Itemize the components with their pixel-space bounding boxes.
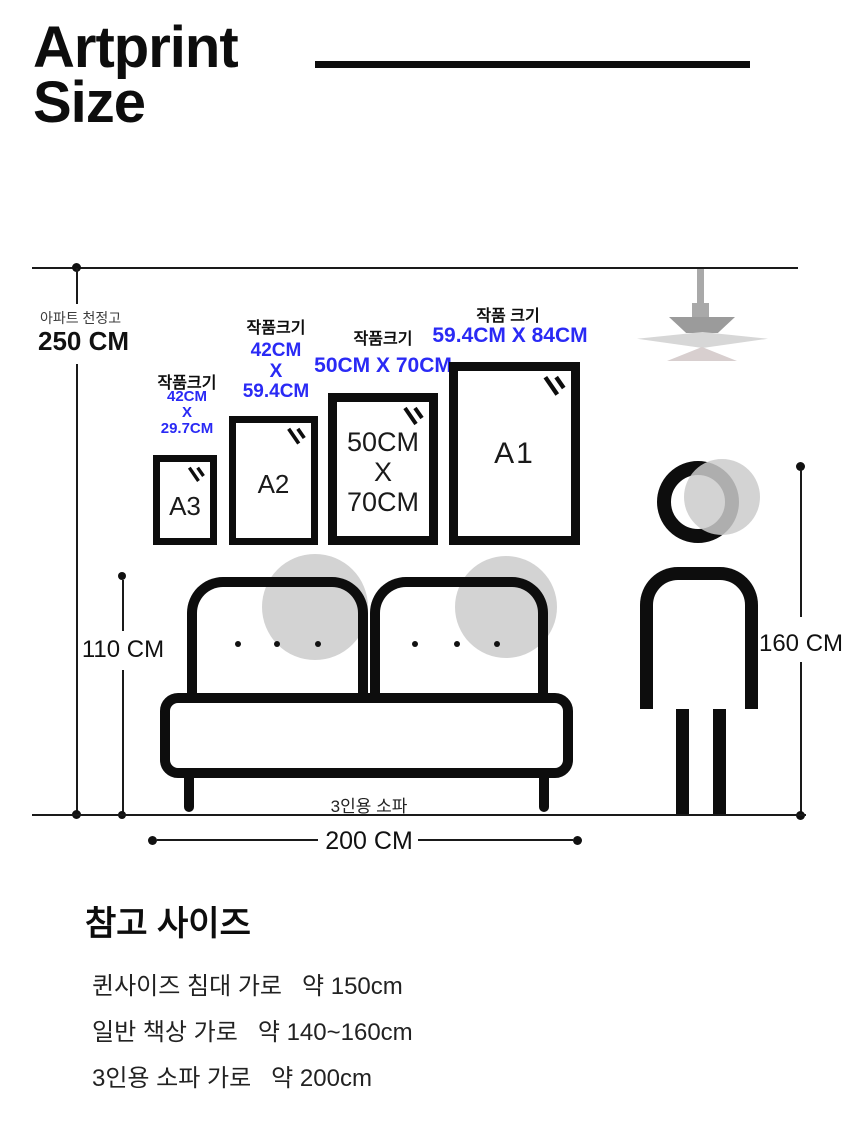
- person-torso: [640, 567, 758, 709]
- glass-glare-icon: [401, 406, 425, 430]
- title-rule: [315, 61, 750, 68]
- dim-110-line-upper: [122, 580, 124, 631]
- pendant-lamp-rod: [697, 269, 704, 305]
- ceiling-caption: 아파트 천정고: [40, 308, 121, 328]
- frame-50x70: 50CM X 70CM: [328, 393, 438, 545]
- frame-a1: A1: [449, 362, 580, 545]
- frame-a2-size-label: A2: [258, 470, 290, 499]
- cushion-button: [494, 641, 500, 647]
- person-leg-right: [713, 709, 726, 814]
- frame-a2-dim-width: 42CM: [243, 341, 310, 362]
- frame-a2-dimensions: 42CM X 59.4CM: [243, 341, 310, 403]
- pendant-lamp-shade-top: [669, 317, 735, 333]
- dim-160-line-upper: [800, 470, 802, 617]
- frame-a3-dim-width: 42CM: [161, 389, 214, 405]
- person-leg-left: [676, 709, 689, 814]
- frame-50x70-inner-height: 70CM: [347, 487, 419, 517]
- dim-200-line-right: [418, 839, 573, 841]
- page-title-line2: Size: [33, 75, 238, 130]
- dim-200-right-dot: [573, 836, 582, 845]
- glass-glare-icon: [186, 466, 206, 486]
- frame-a3-dim-x: X: [161, 405, 214, 421]
- dim-250-line-upper: [76, 268, 78, 304]
- frame-50x70-inner-x: X: [347, 457, 419, 487]
- page-title: Artprint Size: [33, 20, 238, 130]
- frame-50x70-caption: 작품크기: [354, 325, 413, 349]
- pendant-lamp-shade-middle: [637, 332, 768, 348]
- floor-line: [32, 814, 806, 816]
- pendant-lamp-shade-bottom: [667, 347, 737, 361]
- cushion-button: [315, 641, 321, 647]
- sofa-leg-right: [539, 776, 549, 812]
- frame-a3-dimensions: 42CM X 29.7CM: [161, 389, 214, 438]
- frame-50x70-size-label: 50CM X 70CM: [347, 427, 419, 518]
- frame-a1-size-label: A1: [494, 437, 535, 471]
- frame-a1-caption: 작품 크기: [476, 302, 539, 326]
- frame-50x70-dimensions: 50CM X 70CM: [314, 355, 452, 378]
- sofa-cushion-left: [187, 577, 368, 695]
- frame-a1-dimensions: 59.4CM X 84CM: [432, 325, 587, 348]
- dim-250-line-lower: [76, 364, 78, 813]
- ceiling-line: [32, 267, 798, 269]
- sofa-seat: [160, 693, 573, 778]
- frame-a2-caption: 작품크기: [247, 314, 306, 338]
- frame-a3-size-label: A3: [169, 492, 201, 521]
- reference-item-desk: 일반 책상 가로 약 140~160cm: [92, 1012, 413, 1047]
- frame-a2-dim-x: X: [243, 362, 310, 383]
- dim-200-line-left: [157, 839, 318, 841]
- cushion-button: [235, 641, 241, 647]
- sofa-width-label: 200 CM: [325, 827, 413, 856]
- frame-a3: A3: [153, 455, 217, 545]
- glass-glare-icon: [541, 375, 567, 401]
- reference-item-bed: 퀸사이즈 침대 가로 약 150cm: [92, 966, 403, 1001]
- dim-200-left-dot: [148, 836, 157, 845]
- person-height-label: 160 CM: [759, 630, 843, 658]
- dim-110-line-lower: [122, 670, 124, 815]
- person-head-accent-circle: [684, 459, 760, 535]
- ceiling-height-value: 250 CM: [38, 326, 129, 357]
- frame-a3-dim-height: 29.7CM: [161, 421, 214, 437]
- cushion-button: [274, 641, 280, 647]
- cushion-button: [454, 641, 460, 647]
- glass-glare-icon: [285, 427, 307, 449]
- cushion-button: [412, 641, 418, 647]
- reference-item-sofa: 3인용 소파 가로 약 200cm: [92, 1058, 372, 1093]
- artprint-size-infographic: Artprint Size 아파트 천정고 250 CM 작품크기 42CM X…: [0, 0, 860, 1137]
- sofa-cushion-right: [370, 577, 548, 695]
- frame-a2: A2: [229, 416, 318, 545]
- sofa-leg-left: [184, 776, 194, 812]
- pendant-lamp-socket: [692, 303, 709, 318]
- dim-160-line-lower: [800, 662, 802, 815]
- frame-a2-dim-height: 59.4CM: [243, 382, 310, 403]
- page-title-line1: Artprint: [33, 20, 238, 75]
- frame-50x70-inner-width: 50CM: [347, 427, 419, 457]
- sofa-height-label: 110 CM: [82, 636, 164, 664]
- reference-heading: 참고 사이즈: [85, 896, 251, 945]
- dim-110-top-dot: [118, 572, 126, 580]
